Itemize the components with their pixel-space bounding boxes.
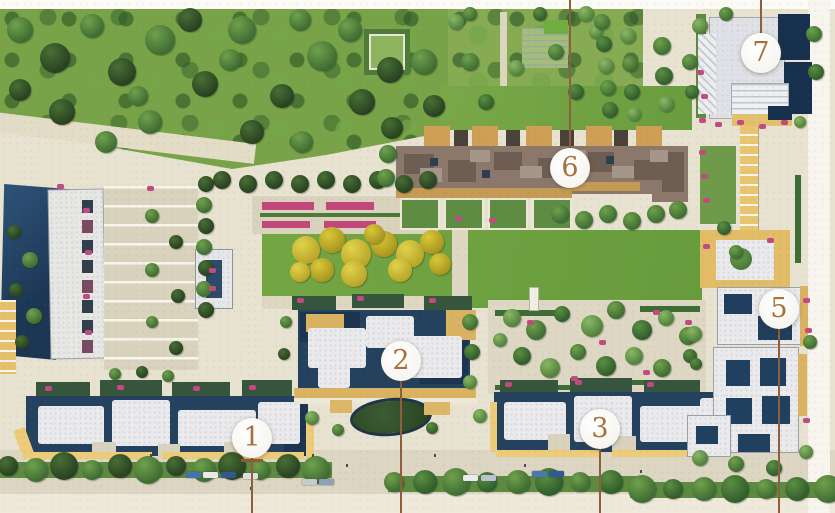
building-1-trim xyxy=(28,452,152,459)
marker-number: 7 xyxy=(752,39,769,66)
verge-southeast xyxy=(630,482,835,498)
building-5-courtyard-block xyxy=(700,230,790,288)
tree-icon xyxy=(377,169,395,187)
road-north xyxy=(0,0,835,9)
tree-icon xyxy=(280,316,292,328)
building-west-slab xyxy=(49,190,106,359)
tree-icon xyxy=(162,370,174,382)
tree-icon xyxy=(623,212,641,230)
marker-circle: 1 xyxy=(232,418,272,458)
leader-line xyxy=(599,447,602,513)
building-5-body xyxy=(762,396,790,424)
marker-circle: 2 xyxy=(381,341,421,381)
building-6-plot xyxy=(490,200,526,228)
tree-icon xyxy=(575,211,593,229)
building-6-plot xyxy=(402,200,438,228)
building-1-trim xyxy=(306,416,314,460)
tree-icon xyxy=(196,197,212,213)
building-3-trim xyxy=(490,402,497,452)
site-plan-map: 1 2 3 5 6 7 xyxy=(0,0,835,513)
building-5-body xyxy=(738,434,770,452)
building-6-body xyxy=(652,146,688,202)
tree-icon xyxy=(647,205,665,223)
marker-number: 5 xyxy=(770,295,787,322)
leader-line xyxy=(569,0,572,150)
marker-circle: 3 xyxy=(580,409,620,449)
tree-icon xyxy=(599,205,617,223)
building-6-plot xyxy=(534,200,570,228)
marker-number: 3 xyxy=(591,415,608,442)
building-small-slab xyxy=(196,250,232,308)
building-5-trim xyxy=(798,354,807,416)
leader-line xyxy=(778,327,781,513)
building-5-body xyxy=(724,294,752,314)
building-2-roof xyxy=(318,366,350,388)
tree-icon xyxy=(669,201,687,219)
tree-icon xyxy=(379,145,397,163)
lawn-north xyxy=(440,86,692,130)
court-tree xyxy=(730,248,752,270)
building-1-garden xyxy=(100,380,162,396)
tree-icon xyxy=(369,171,387,189)
tree-icon xyxy=(239,175,257,193)
building-3-garden xyxy=(570,378,632,393)
tree-icon xyxy=(278,348,290,360)
building-marker-1[interactable]: 1 xyxy=(232,418,272,458)
marker-number: 1 xyxy=(243,424,260,451)
tree-icon xyxy=(794,116,806,128)
building-2-garden xyxy=(352,294,404,308)
leader-line xyxy=(760,0,763,35)
marker-circle: 6 xyxy=(550,148,590,188)
hedge-strip xyxy=(640,306,700,312)
building-1-garden xyxy=(242,380,292,396)
building-3-trim xyxy=(496,450,600,457)
building-marker-5[interactable]: 5 xyxy=(759,289,799,329)
building-7-body xyxy=(778,14,810,60)
leader-tick xyxy=(241,459,263,462)
atrium xyxy=(206,260,222,298)
pergola-west xyxy=(0,300,16,374)
building-7-body xyxy=(768,106,792,120)
tree-icon xyxy=(213,171,231,189)
flowerbed xyxy=(324,221,376,228)
tree-icon xyxy=(332,424,344,436)
building-2-garden xyxy=(424,296,472,310)
marker-circle: 7 xyxy=(741,33,781,73)
building-marker-6[interactable]: 6 xyxy=(550,148,590,188)
verge-southwest xyxy=(0,462,332,478)
building-5-body xyxy=(760,358,786,386)
tree-icon xyxy=(317,171,335,189)
hedge-east xyxy=(795,175,801,263)
building-1-roof xyxy=(112,400,170,446)
building-7-wing xyxy=(698,34,716,114)
building-2-trim xyxy=(294,388,476,398)
flower-bed xyxy=(715,122,722,127)
flower-bed xyxy=(57,184,64,189)
garden-pavilion xyxy=(530,288,538,310)
pond-ramp xyxy=(330,400,352,413)
building-1-roof xyxy=(38,406,104,444)
building-2-roof xyxy=(308,328,366,368)
building-6-plot xyxy=(446,200,482,228)
tree-icon xyxy=(198,176,214,192)
building-5-trim xyxy=(800,286,808,346)
hedge-square-garden xyxy=(364,29,410,75)
marker-number: 2 xyxy=(392,347,409,374)
building-6-trim xyxy=(396,188,572,198)
flowerbed xyxy=(262,202,314,210)
tree-icon xyxy=(343,175,361,193)
leader-line xyxy=(400,379,403,513)
building-3-court xyxy=(548,434,570,450)
courtyard-strips xyxy=(104,186,198,370)
tree-icon xyxy=(473,409,487,423)
lawn-east xyxy=(700,146,736,224)
marker-number: 6 xyxy=(561,154,578,181)
pergola-east xyxy=(740,124,758,230)
hedge-strip xyxy=(495,310,565,316)
tree-icon xyxy=(653,37,671,55)
building-5-body xyxy=(696,426,718,444)
flower-bed xyxy=(699,118,706,123)
sport-court xyxy=(522,28,568,68)
playground xyxy=(544,20,568,34)
building-2-garden xyxy=(292,296,336,310)
building-marker-3[interactable]: 3 xyxy=(580,409,620,449)
building-5-body xyxy=(726,360,750,386)
tree-icon xyxy=(265,171,283,189)
flowerbed xyxy=(326,202,374,210)
flowerbed xyxy=(262,221,310,228)
building-marker-7[interactable]: 7 xyxy=(741,33,781,73)
tree-icon xyxy=(426,422,438,434)
building-marker-2[interactable]: 2 xyxy=(381,341,421,381)
marker-circle: 5 xyxy=(759,289,799,329)
pond-ramp xyxy=(424,402,450,415)
tree-icon xyxy=(198,218,214,234)
building-6-body xyxy=(396,146,688,194)
tree-icon xyxy=(291,175,309,193)
leader-line xyxy=(251,456,254,513)
tree-icon xyxy=(655,67,673,85)
